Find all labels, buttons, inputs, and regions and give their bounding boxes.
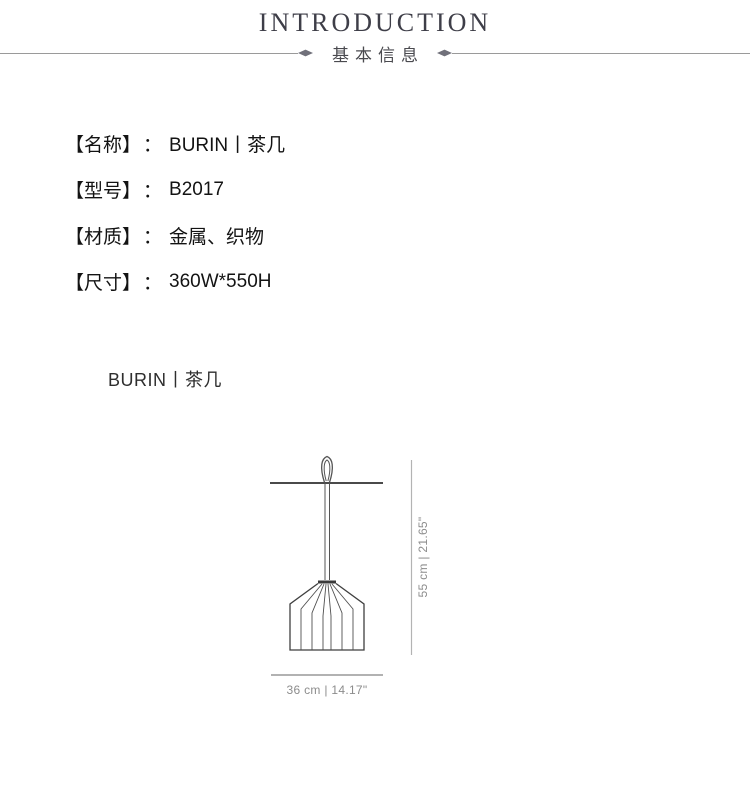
product-intro-section: INTRODUCTION 基本信息 【名称】：BURIN丨茶几 【型号】：B20…	[0, 0, 750, 809]
spec-value: B2017	[169, 179, 224, 201]
divider-line-right	[452, 53, 750, 54]
product-title: BURIN丨茶几	[108, 366, 222, 392]
spec-label: 【尺寸】	[65, 268, 141, 295]
spec-value: 金属、织物	[169, 222, 264, 249]
section-subtitle: 基本信息	[332, 41, 424, 66]
spec-list: 【名称】：BURIN丨茶几 【型号】：B2017 【材质】：金属、织物 【尺寸】…	[65, 131, 285, 315]
height-dimension-label: 55 cm | 21.65"	[416, 517, 430, 598]
section-title: INTRODUCTION	[0, 8, 750, 38]
spec-row-material: 【材质】：金属、织物	[65, 223, 285, 248]
width-dimension-label: 36 cm | 14.17"	[287, 683, 368, 697]
spec-row-size: 【尺寸】：360W*550H	[65, 269, 285, 294]
spec-colon: ：	[143, 268, 162, 295]
spec-colon: ：	[143, 130, 162, 157]
hanging-loop-inner	[324, 460, 330, 481]
spec-value: BURIN丨茶几	[169, 130, 285, 157]
product-dimension-diagram: 36 cm | 14.17" 55 cm | 21.65"	[240, 448, 450, 708]
lamp-shade-ribs	[301, 584, 353, 650]
spec-colon: ：	[143, 176, 162, 203]
spec-label: 【名称】	[65, 130, 141, 157]
spec-row-name: 【名称】：BURIN丨茶几	[65, 131, 285, 156]
subtitle-divider: 基本信息	[0, 41, 750, 65]
lamp-stem	[325, 483, 330, 580]
diamond-arrow-icon	[437, 49, 452, 57]
diamond-arrow-icon	[298, 49, 313, 57]
divider-line-left	[0, 53, 298, 54]
spec-row-model: 【型号】：B2017	[65, 177, 285, 202]
spec-label: 【型号】	[65, 176, 141, 203]
spec-value: 360W*550H	[169, 271, 271, 293]
spec-label: 【材质】	[65, 222, 141, 249]
spec-colon: ：	[143, 222, 162, 249]
